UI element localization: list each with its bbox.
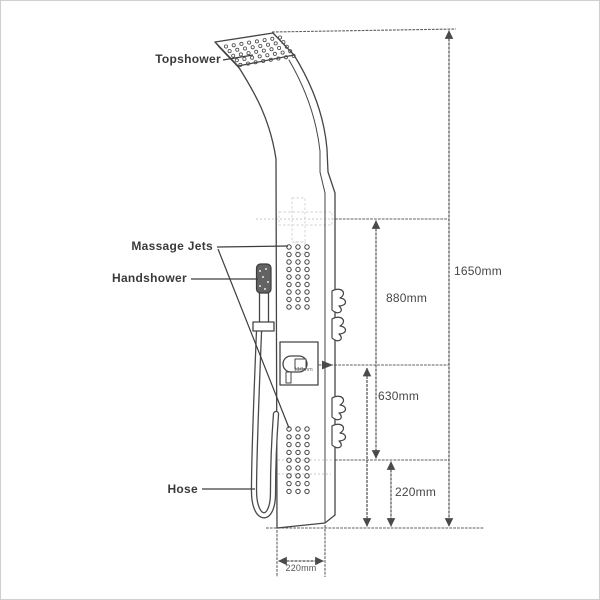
mixer-valve-stem (286, 372, 291, 383)
massage-jet (296, 260, 300, 264)
valve-pointer-arrowhead (322, 361, 333, 370)
massage-jets-grid-upper (287, 245, 309, 309)
massage-jet (305, 450, 309, 454)
massage-jet (287, 252, 291, 256)
massage-jets-grid-lower (287, 427, 309, 494)
label-massage-jets: Massage Jets (131, 240, 213, 252)
massage-jet (287, 290, 291, 294)
massage-jet (296, 474, 300, 478)
massage-jet (296, 305, 300, 309)
label-handshower: Handshower (112, 272, 187, 284)
showerhead-hole (278, 36, 281, 39)
massage-jet (287, 282, 291, 286)
side-jet (332, 396, 346, 419)
side-body-jets (332, 289, 346, 447)
panel-bottom-edge (277, 515, 335, 528)
massage-jet (296, 435, 300, 439)
massage-jet (305, 481, 309, 485)
massage-jet (296, 481, 300, 485)
massage-jet (287, 260, 291, 264)
mixer-valve (280, 342, 318, 385)
massage-jet (296, 450, 300, 454)
massage-jet (287, 297, 291, 301)
massage-jet (287, 275, 291, 279)
massage-jet (287, 474, 291, 478)
dim-label-630mm: 630mm (378, 390, 419, 402)
massage-jet (287, 435, 291, 439)
side-jet (332, 424, 346, 447)
massage-jet (296, 282, 300, 286)
massage-jet (305, 435, 309, 439)
massage-jet (296, 290, 300, 294)
extension-line-top (272, 29, 456, 32)
massage-jet (296, 442, 300, 446)
massage-jet (305, 267, 309, 271)
massage-jet (287, 305, 291, 309)
massage-jet (305, 282, 309, 286)
dim-label-220mm-width: 220mm (277, 564, 325, 573)
massage-jet (287, 489, 291, 493)
shower-panel-diagram: Topshower Massage Jets Handshower Hose 1… (0, 0, 600, 600)
dim-label-880mm: 880mm (386, 292, 427, 304)
massage-jet (305, 442, 309, 446)
massage-jet (305, 305, 309, 309)
massage-jet (296, 245, 300, 249)
leader-massage-jets-upper (217, 246, 288, 247)
massage-jet (296, 427, 300, 431)
side-jet (332, 289, 346, 312)
massage-jet (296, 267, 300, 271)
massage-jet (305, 427, 309, 431)
massage-jet (305, 290, 309, 294)
massage-jet (287, 458, 291, 462)
massage-jet (296, 458, 300, 462)
massage-jet (287, 450, 291, 454)
dim-label-220mm-vertical: 220mm (395, 486, 436, 498)
massage-jet (305, 260, 309, 264)
massage-jet (296, 466, 300, 470)
handshower-handle (260, 292, 269, 323)
side-jet (332, 317, 346, 340)
massage-jet (287, 267, 291, 271)
handshower-assembly (253, 264, 276, 515)
label-topshower: Topshower (155, 53, 221, 65)
massage-jet (287, 442, 291, 446)
massage-jet (305, 489, 309, 493)
massage-jet (305, 466, 309, 470)
massage-jet (287, 481, 291, 485)
massage-jet (305, 474, 309, 478)
massage-jet (305, 458, 309, 462)
dim-label-1650mm: 1650mm (454, 265, 502, 277)
label-hose: Hose (167, 483, 198, 495)
massage-jet (296, 489, 300, 493)
massage-jet (305, 252, 309, 256)
massage-jet (305, 297, 309, 301)
massage-jet (305, 275, 309, 279)
massage-jet (296, 297, 300, 301)
handshower-head (257, 264, 272, 293)
massage-jet (287, 466, 291, 470)
diagram-line-art (1, 1, 600, 600)
handshower-bracket (253, 322, 274, 331)
massage-jet (296, 252, 300, 256)
dim-label-110mm: 110mm (294, 368, 313, 374)
massage-jet (296, 275, 300, 279)
massage-jet (305, 245, 309, 249)
